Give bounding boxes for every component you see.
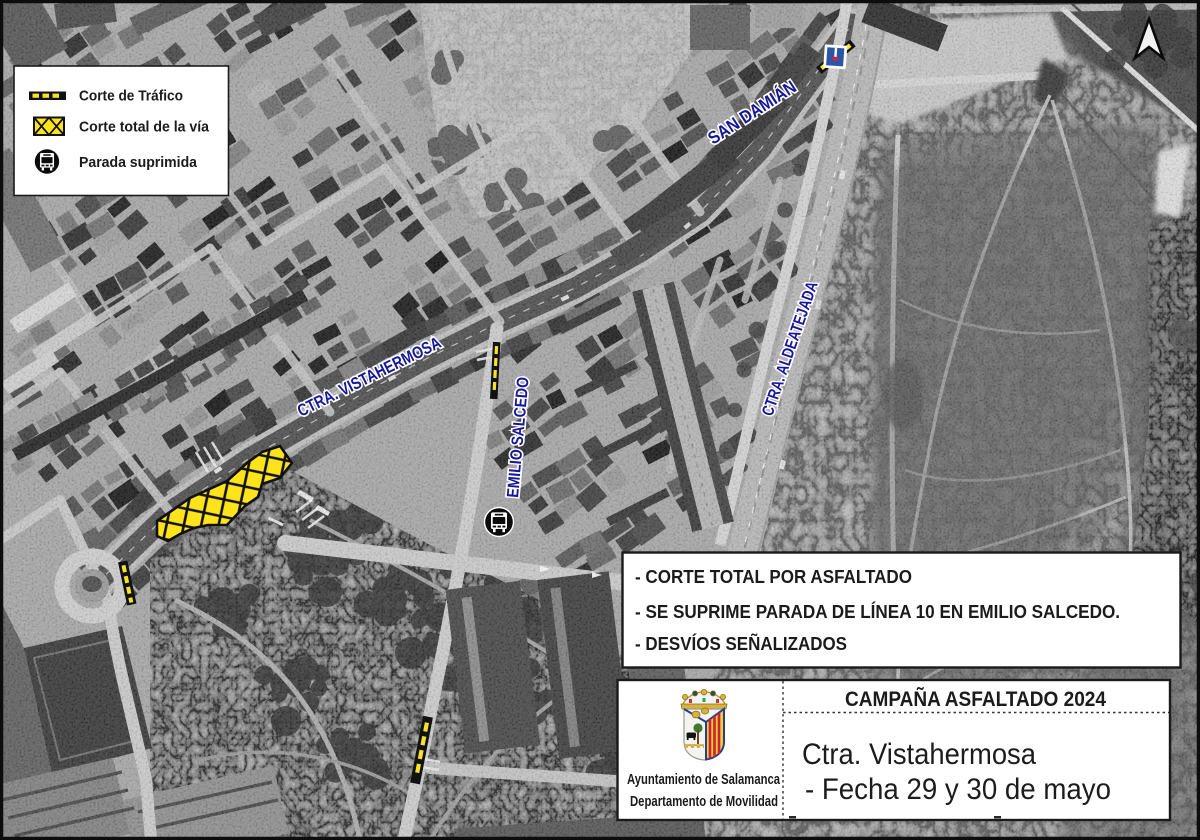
- svg-text:Corte de Tráfico: Corte de Tráfico: [79, 88, 183, 105]
- svg-text:Corte total de la vía: Corte total de la vía: [79, 119, 210, 136]
- svg-text:CAMPAÑA ASFALTADO 2024: CAMPAÑA ASFALTADO 2024: [845, 688, 1106, 711]
- svg-text:Parada suprimida: Parada suprimida: [79, 154, 198, 171]
- svg-text:Ayuntamiento de Salamanca: Ayuntamiento de Salamanca: [627, 771, 780, 788]
- svg-text:- CORTE TOTAL POR ASFALTADO: - CORTE TOTAL POR ASFALTADO: [635, 567, 912, 587]
- svg-text:Departamento de Movilidad: Departamento de Movilidad: [630, 793, 778, 810]
- svg-text:- SE SUPRIME PARADA DE LÍNEA 1: - SE SUPRIME PARADA DE LÍNEA 10 EN EMILI…: [635, 601, 1120, 622]
- svg-text:- DESVÍOS SEÑALIZADOS: - DESVÍOS SEÑALIZADOS: [635, 633, 847, 654]
- svg-text:- Fecha 29 y 30 de mayo: - Fecha 29 y 30 de mayo: [805, 773, 1111, 806]
- svg-text:Ctra. Vistahermosa: Ctra. Vistahermosa: [802, 738, 1036, 771]
